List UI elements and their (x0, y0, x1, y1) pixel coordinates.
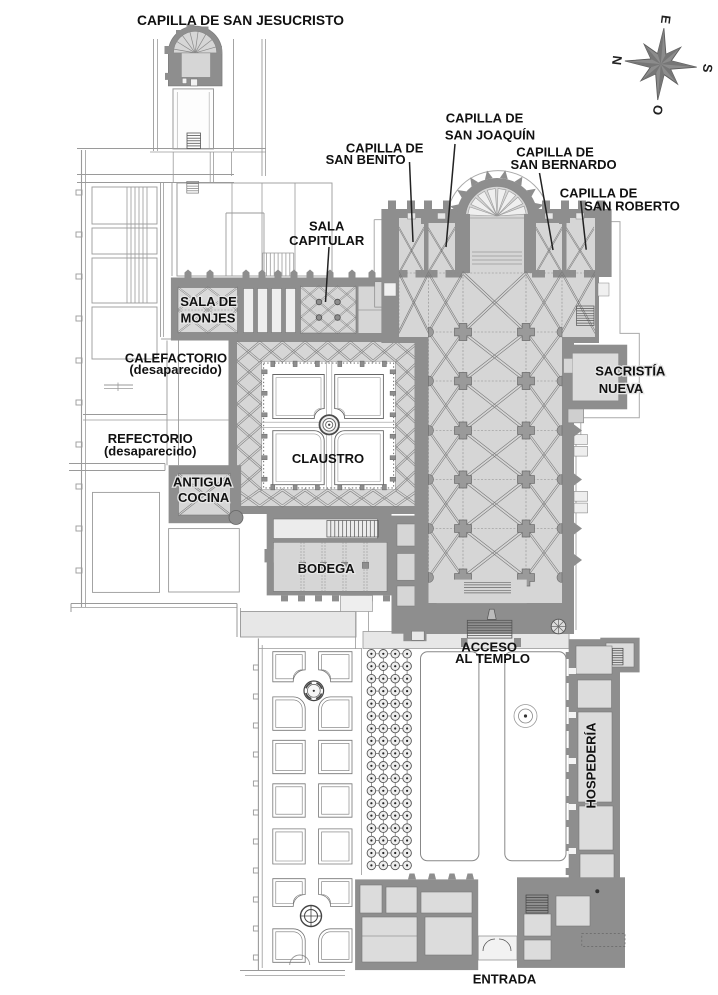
svg-text:N: N (609, 55, 625, 66)
svg-text:MONJES: MONJES (181, 310, 236, 325)
svg-text:SAN BENITO: SAN BENITO (326, 152, 406, 167)
svg-text:AL TEMPLO: AL TEMPLO (455, 651, 530, 666)
svg-text:NUEVA: NUEVA (599, 381, 644, 396)
svg-text:SALA DE: SALA DE (180, 294, 237, 309)
svg-text:(desaparecido): (desaparecido) (104, 443, 196, 458)
svg-text:SAN BERNARDO: SAN BERNARDO (511, 157, 617, 172)
svg-text:ENTRADA: ENTRADA (473, 972, 537, 987)
svg-text:CAPILLA DE SAN JESUCRISTO: CAPILLA DE SAN JESUCRISTO (137, 13, 344, 28)
svg-text:O: O (650, 104, 666, 116)
svg-text:CAPITULAR: CAPITULAR (289, 233, 365, 248)
svg-text:SAN ROBERTO: SAN ROBERTO (584, 199, 680, 214)
svg-text:CLAUSTRO: CLAUSTRO (292, 451, 364, 466)
svg-text:SAN JOAQUÍN: SAN JOAQUÍN (445, 128, 535, 143)
svg-text:BODEGA: BODEGA (298, 561, 356, 576)
svg-text:COCINA: COCINA (178, 490, 230, 505)
svg-text:SACRISTÍA: SACRISTÍA (595, 364, 666, 379)
svg-text:(desaparecido): (desaparecido) (129, 362, 221, 377)
svg-text:SALA: SALA (309, 218, 345, 233)
svg-text:CAPILLA DE: CAPILLA DE (446, 111, 524, 126)
svg-text:HOSPEDERÍA: HOSPEDERÍA (584, 722, 599, 809)
svg-text:ANTIGUA: ANTIGUA (173, 475, 233, 490)
